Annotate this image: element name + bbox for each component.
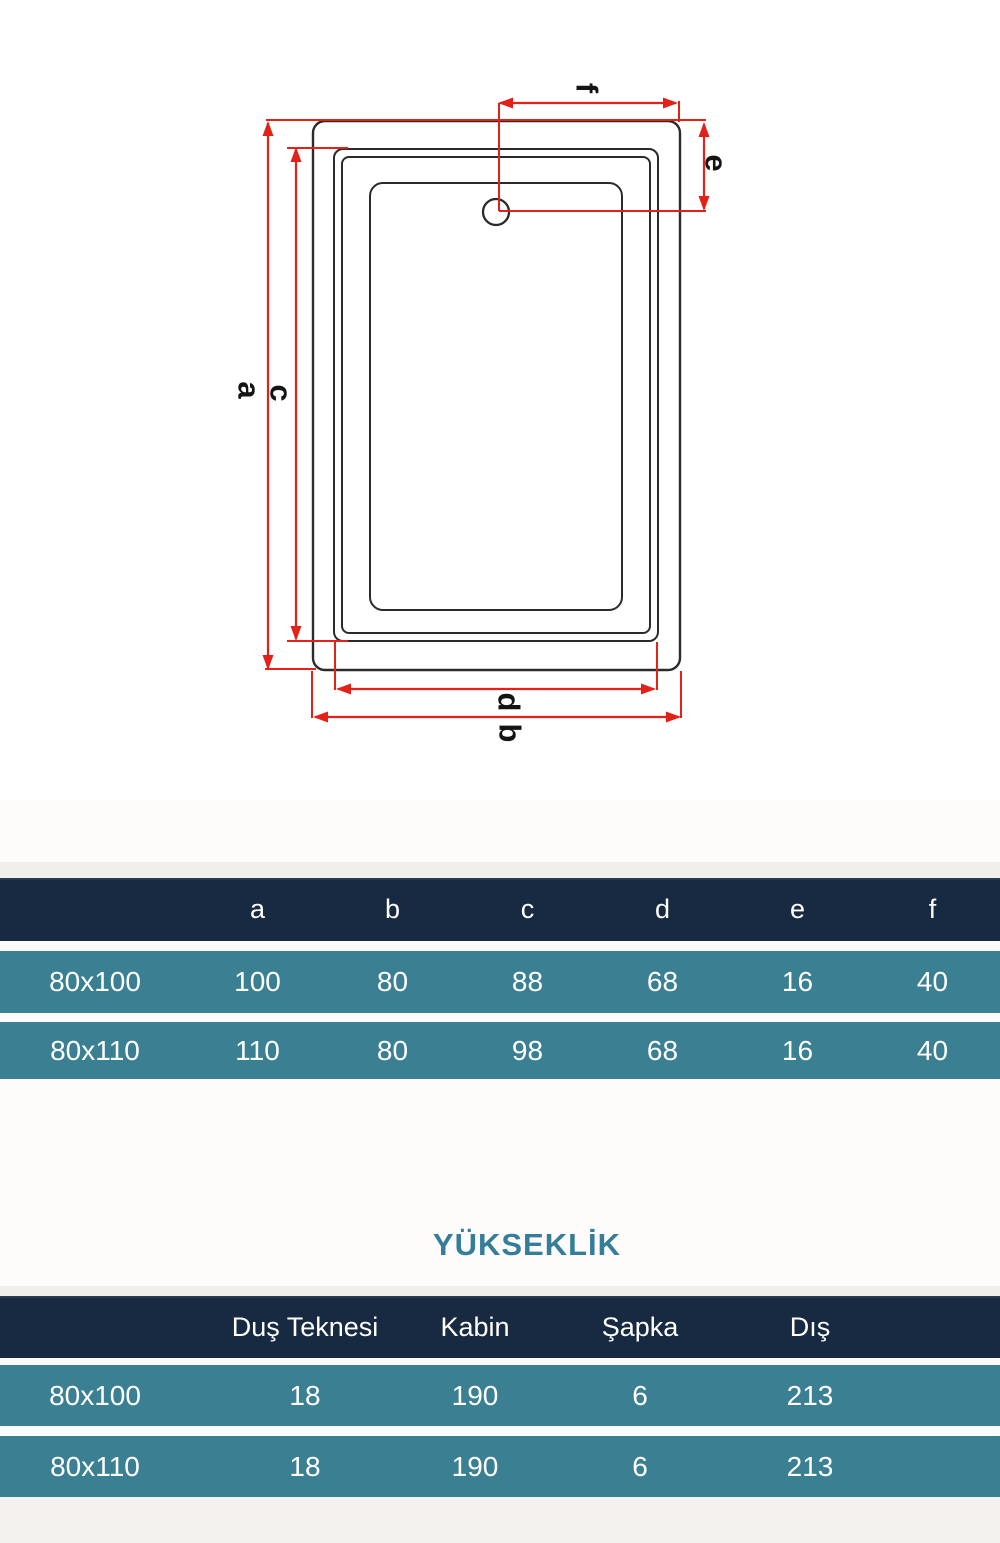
tray-rim-inner [342, 157, 650, 633]
height-section-title: YÜKSEKLİK [27, 1227, 1000, 1263]
value-a: 100 [190, 968, 325, 996]
value-dus-teknesi: 18 [190, 1382, 420, 1410]
dim-c-arrow-up [291, 147, 302, 162]
dimension-f: f [498, 83, 678, 109]
dimension-d: d [336, 684, 656, 712]
col-header-e: e [730, 896, 865, 923]
tray-outer-edge [313, 121, 680, 670]
extension-lines [265, 101, 706, 718]
height-table-row-80x110: 80x110 18 190 6 213 [0, 1436, 1000, 1497]
tray-floor [370, 183, 622, 610]
value-kabin: 190 [420, 1382, 530, 1410]
dim-d-arrow-right [641, 684, 656, 695]
dimensions-table-row-80x100: 80x100 100 80 88 68 16 40 [0, 951, 1000, 1013]
dim-e-arrow-down [699, 196, 710, 211]
dim-label-d: d [492, 693, 527, 712]
value-b: 80 [325, 1037, 460, 1065]
dim-label-f: f [570, 83, 605, 94]
shower-tray-diagram: a c e f d [0, 0, 1000, 800]
bottom-margin-strip [0, 1497, 1000, 1543]
value-d: 68 [595, 1037, 730, 1065]
value-dis: 213 [750, 1382, 870, 1410]
value-c: 88 [460, 968, 595, 996]
dim-b-arrow-left [313, 712, 328, 723]
tray-outlines [313, 121, 680, 670]
separator-strip [0, 862, 1000, 878]
col-header-a: a [190, 896, 325, 923]
dim-label-a: a [232, 381, 267, 399]
dim-a-arrow-up [263, 121, 274, 136]
value-dus-teknesi: 18 [190, 1453, 420, 1481]
value-d: 68 [595, 968, 730, 996]
row-label: 80x110 [0, 1037, 190, 1065]
value-c: 98 [460, 1037, 595, 1065]
dim-d-arrow-left [336, 684, 351, 695]
col-header-dus-teknesi: Duş Teknesi [190, 1314, 420, 1341]
height-table-header: Duş Teknesi Kabin Şapka Dış [0, 1296, 1000, 1358]
dimension-b: b [313, 712, 681, 743]
value-kabin: 190 [420, 1453, 530, 1481]
separator-strip [0, 1286, 1000, 1296]
dimensions-table-row-80x110: 80x110 110 80 98 68 16 40 [0, 1022, 1000, 1079]
dimension-c: c [264, 147, 302, 641]
value-e: 16 [730, 968, 865, 996]
col-header-dis: Dış [750, 1314, 870, 1341]
col-header-sapka: Şapka [530, 1314, 750, 1341]
row-label: 80x110 [0, 1453, 190, 1481]
row-label: 80x100 [0, 968, 190, 996]
dim-label-b: b [493, 724, 528, 743]
value-dis: 213 [750, 1453, 870, 1481]
dim-label-c: c [264, 384, 299, 401]
value-f: 40 [865, 1037, 1000, 1065]
dim-c-arrow-down [291, 626, 302, 641]
tray-rim-outer [334, 149, 658, 641]
dim-e-arrow-up [699, 122, 710, 137]
value-f: 40 [865, 968, 1000, 996]
value-a: 110 [190, 1037, 325, 1065]
col-header-c: c [460, 896, 595, 923]
dimension-e: e [699, 122, 734, 211]
row-label: 80x100 [0, 1382, 190, 1410]
value-sapka: 6 [530, 1382, 750, 1410]
col-header-f: f [865, 896, 1000, 923]
col-header-kabin: Kabin [420, 1314, 530, 1341]
value-b: 80 [325, 968, 460, 996]
dim-a-arrow-down [263, 655, 274, 670]
col-header-b: b [325, 896, 460, 923]
dim-label-e: e [699, 154, 734, 171]
dim-f-arrow-left [498, 98, 513, 109]
col-header-d: d [595, 896, 730, 923]
shower-tray-spec-sheet: a c e f d [0, 0, 1000, 1543]
dim-f-arrow-right [663, 98, 678, 109]
value-e: 16 [730, 1037, 865, 1065]
height-table-row-80x100: 80x100 18 190 6 213 [0, 1365, 1000, 1426]
dimensions-table-header: a b c d e f [0, 878, 1000, 941]
dim-b-arrow-right [666, 712, 681, 723]
value-sapka: 6 [530, 1453, 750, 1481]
